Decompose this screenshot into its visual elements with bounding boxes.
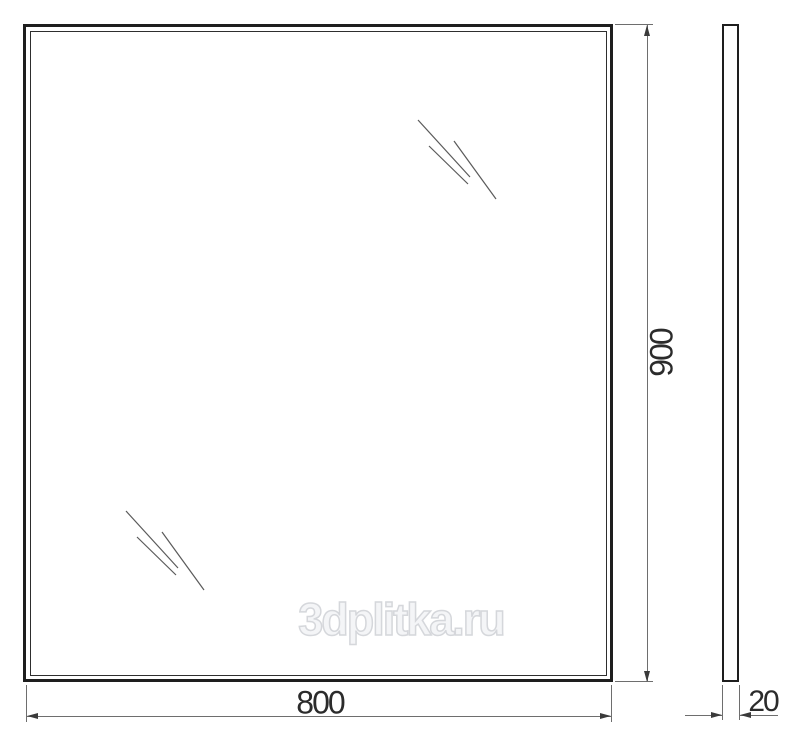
width-extension-line-right — [611, 685, 612, 722]
height-arrowhead-bottom — [644, 671, 650, 682]
reflection-stroke — [126, 511, 178, 568]
thickness-arrowhead-left — [711, 712, 722, 718]
width-dimension-label: 800 — [296, 685, 343, 722]
reflection-stroke — [418, 120, 470, 177]
reflection-stroke — [162, 532, 204, 590]
height-arrowhead-top — [644, 25, 650, 36]
technical-drawing-canvas: 900 800 20 3dplitka.ru — [0, 0, 800, 742]
reflection-mark-bottom-left-icon — [121, 504, 209, 596]
reflection-mark-top-right-icon — [413, 113, 501, 205]
width-arrowhead-right — [600, 713, 611, 719]
height-dimension-label: 900 — [644, 329, 681, 376]
reflection-stroke — [454, 141, 496, 199]
mirror-front-view-inner-frame — [30, 31, 607, 676]
thickness-dimension-label: 20 — [748, 685, 777, 719]
width-arrowhead-left — [27, 713, 38, 719]
thickness-extension-line-left — [722, 685, 723, 720]
mirror-side-view — [722, 24, 739, 682]
